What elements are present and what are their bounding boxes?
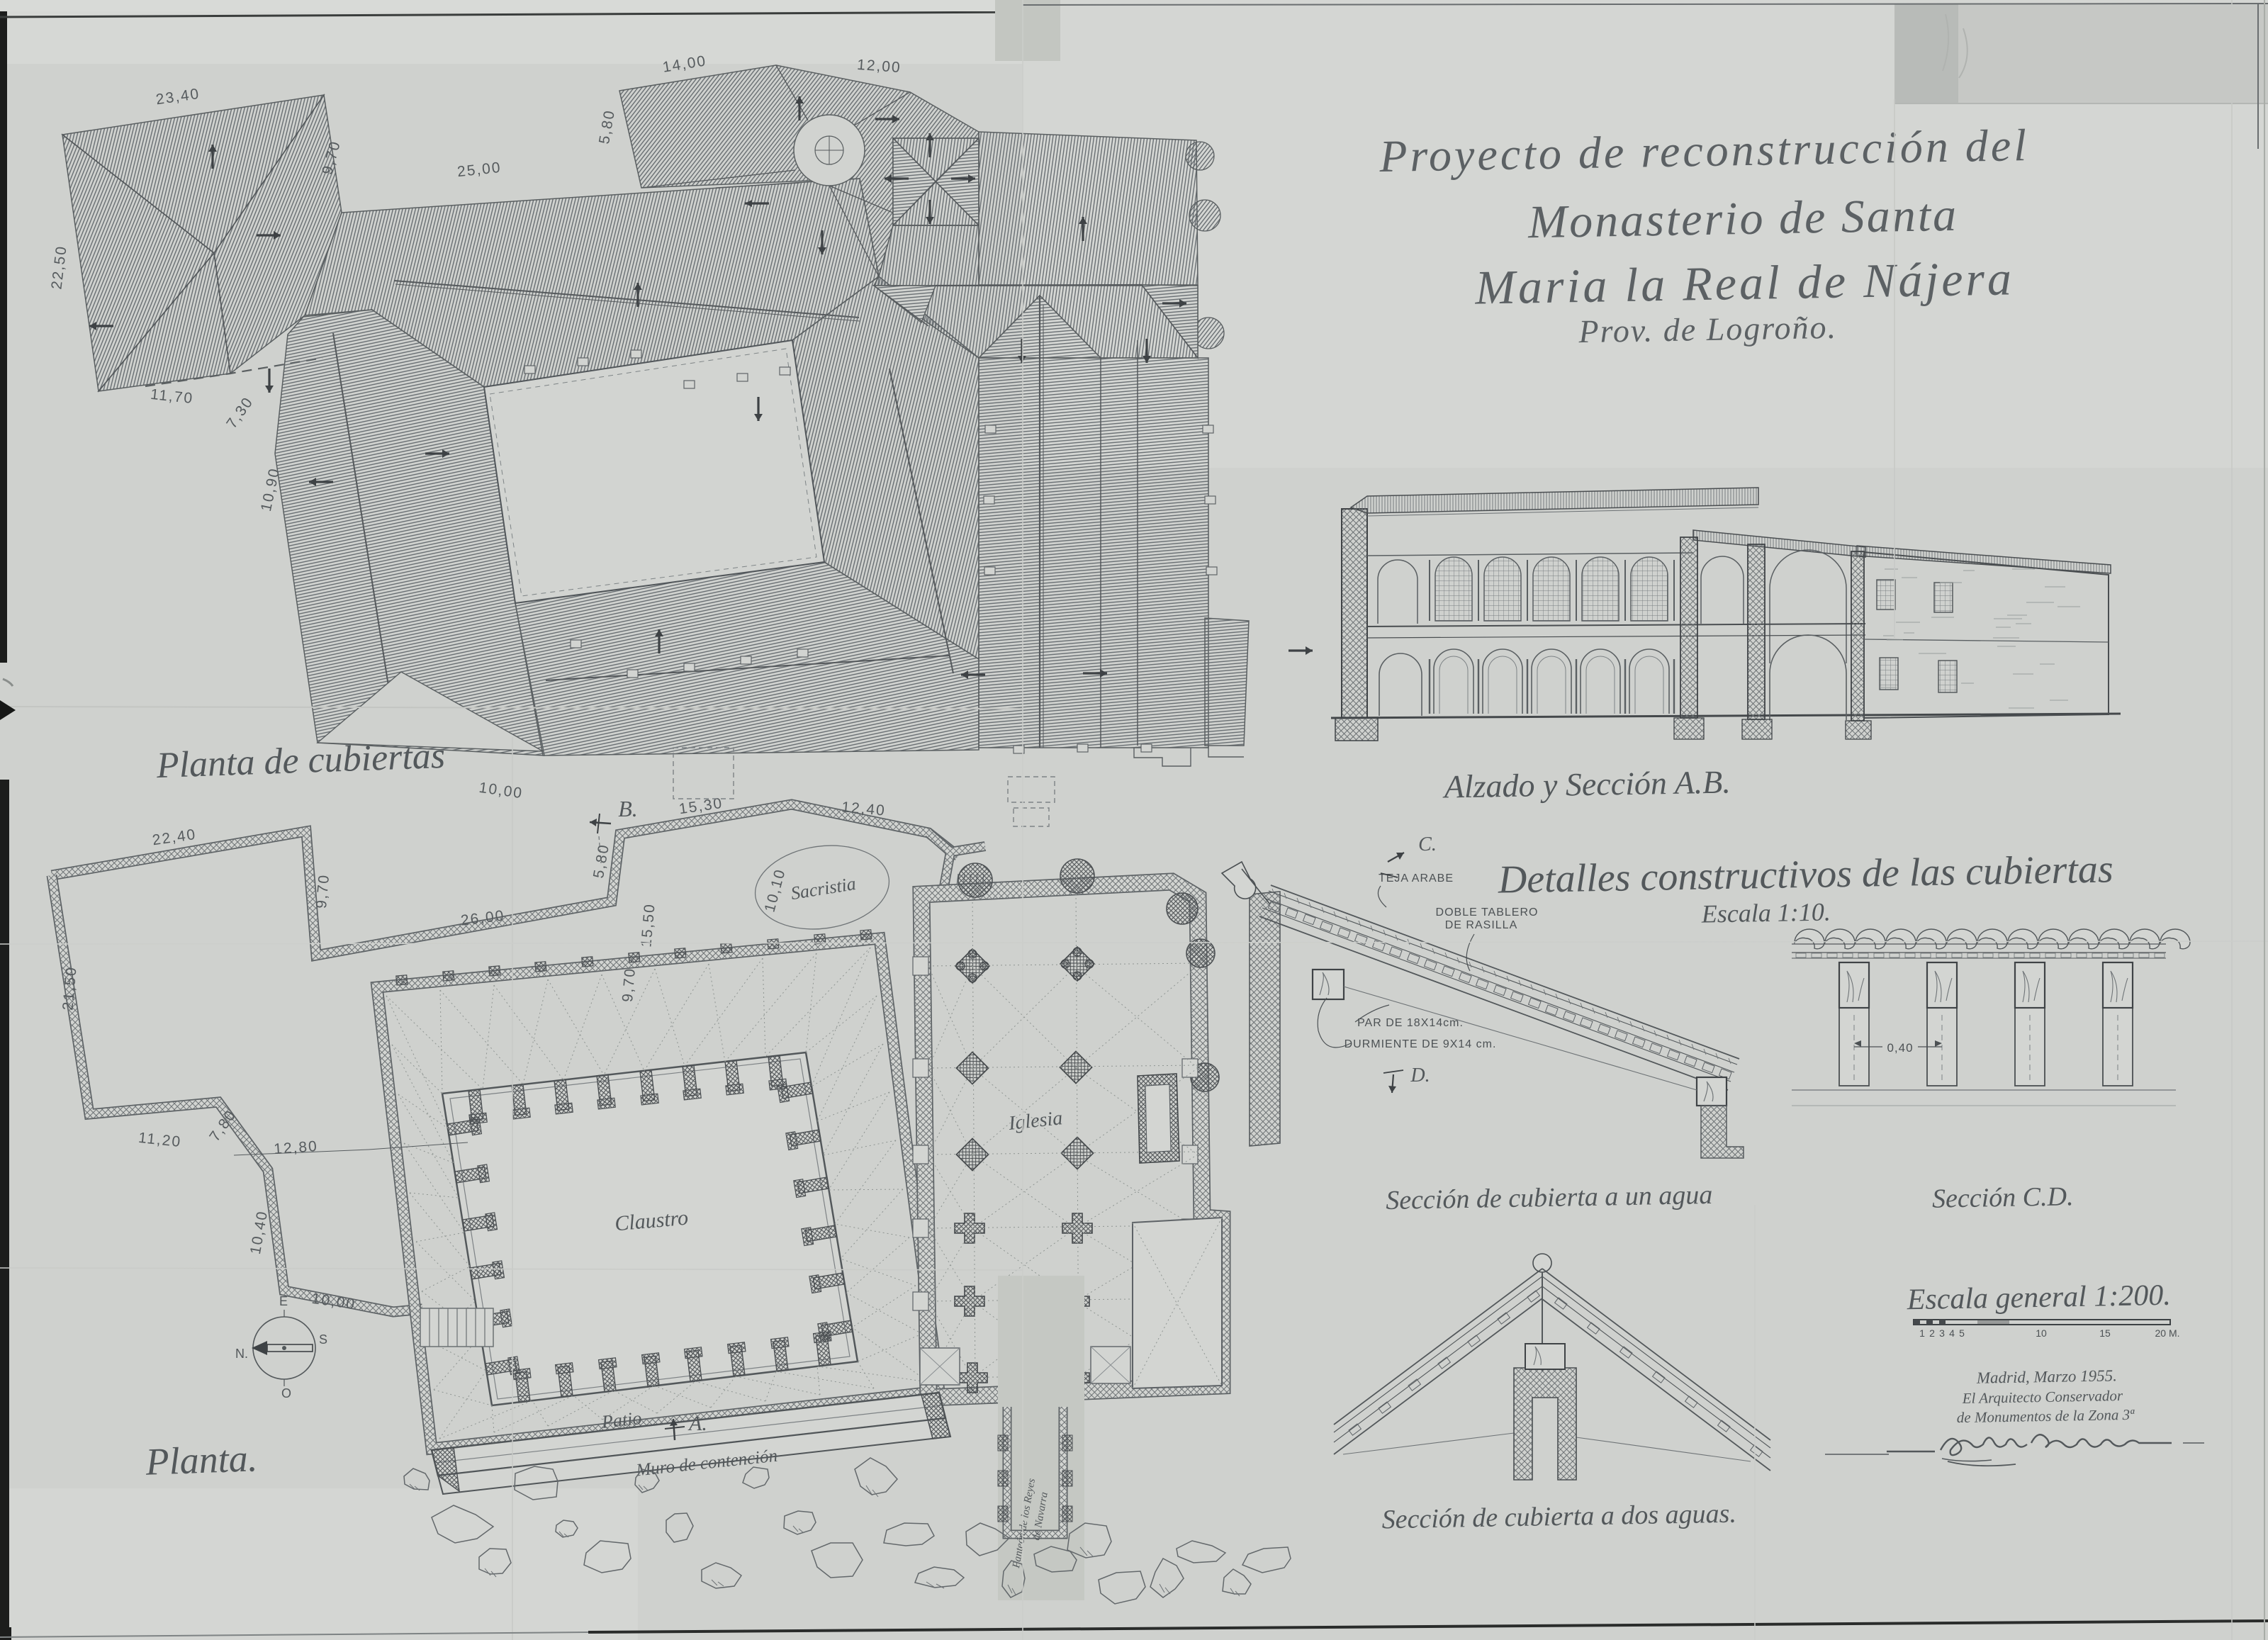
svg-text:Maria la Real de Nájera: Maria la Real de Nájera: [1474, 251, 2015, 314]
svg-text:12,80: 12,80: [274, 1138, 319, 1157]
svg-text:9,70: 9,70: [313, 873, 332, 909]
svg-text:12,00: 12,00: [856, 57, 902, 76]
svg-text:DURMIENTE DE 9X14 cm.: DURMIENTE DE 9X14 cm.: [1344, 1038, 1497, 1050]
svg-text:Escala 1:10.: Escala 1:10.: [1700, 897, 1831, 928]
svg-text:C.: C.: [1418, 833, 1437, 855]
svg-text:20 M.: 20 M.: [2155, 1327, 2179, 1339]
svg-text:3: 3: [1939, 1327, 1945, 1339]
svg-text:Madrid, Marzo 1955.: Madrid, Marzo 1955.: [1976, 1366, 2117, 1386]
svg-text:DE RASILLA: DE RASILLA: [1445, 919, 1517, 931]
svg-text:Planta.: Planta.: [145, 1437, 258, 1483]
svg-text:D.: D.: [1410, 1065, 1430, 1086]
svg-text:O: O: [281, 1386, 291, 1400]
svg-text:A.: A.: [687, 1412, 707, 1435]
svg-text:TEJA ARABE: TEJA ARABE: [1379, 872, 1454, 884]
svg-text:0,40: 0,40: [1887, 1041, 1913, 1055]
svg-text:DOBLE TABLERO: DOBLE TABLERO: [1436, 906, 1539, 919]
svg-text:5: 5: [1959, 1327, 1965, 1339]
svg-text:B.: B.: [618, 796, 638, 821]
svg-text:Escala general 1:200.: Escala general 1:200.: [1906, 1279, 2171, 1317]
svg-text:N.: N.: [235, 1347, 248, 1361]
svg-text:El Arquitecto Conservador: El Arquitecto Conservador: [1962, 1387, 2124, 1407]
svg-text:2: 2: [1929, 1327, 1935, 1339]
svg-text:de Monumentos de la Zona 3ª: de Monumentos de la Zona 3ª: [1957, 1406, 2135, 1426]
svg-text:S: S: [319, 1332, 327, 1347]
svg-text:15: 15: [2099, 1327, 2111, 1339]
svg-text:4: 4: [1949, 1327, 1955, 1339]
svg-text:Sección de cubierta a un: Sección de cubierta a un agua: [1386, 1180, 1713, 1215]
svg-text:Sección C.D.: Sección C.D.: [1932, 1181, 2074, 1213]
svg-text:10: 10: [2036, 1327, 2047, 1339]
svg-text:PAR DE 18X14cm.: PAR DE 18X14cm.: [1357, 1017, 1464, 1029]
svg-text:Patio: Patio: [600, 1408, 643, 1432]
svg-text:1: 1: [1919, 1327, 1925, 1339]
svg-text:9,70: 9,70: [619, 967, 639, 1003]
svg-text:Alzado y Sección A.B.: Alzado y Sección A.B.: [1442, 763, 1731, 804]
svg-text:Prov. de Logroño.: Prov. de Logroño.: [1578, 309, 1837, 349]
svg-text:E: E: [279, 1294, 288, 1308]
svg-text:Sección de cubierta a dos: Sección de cubierta a dos aguas.: [1381, 1499, 1736, 1535]
